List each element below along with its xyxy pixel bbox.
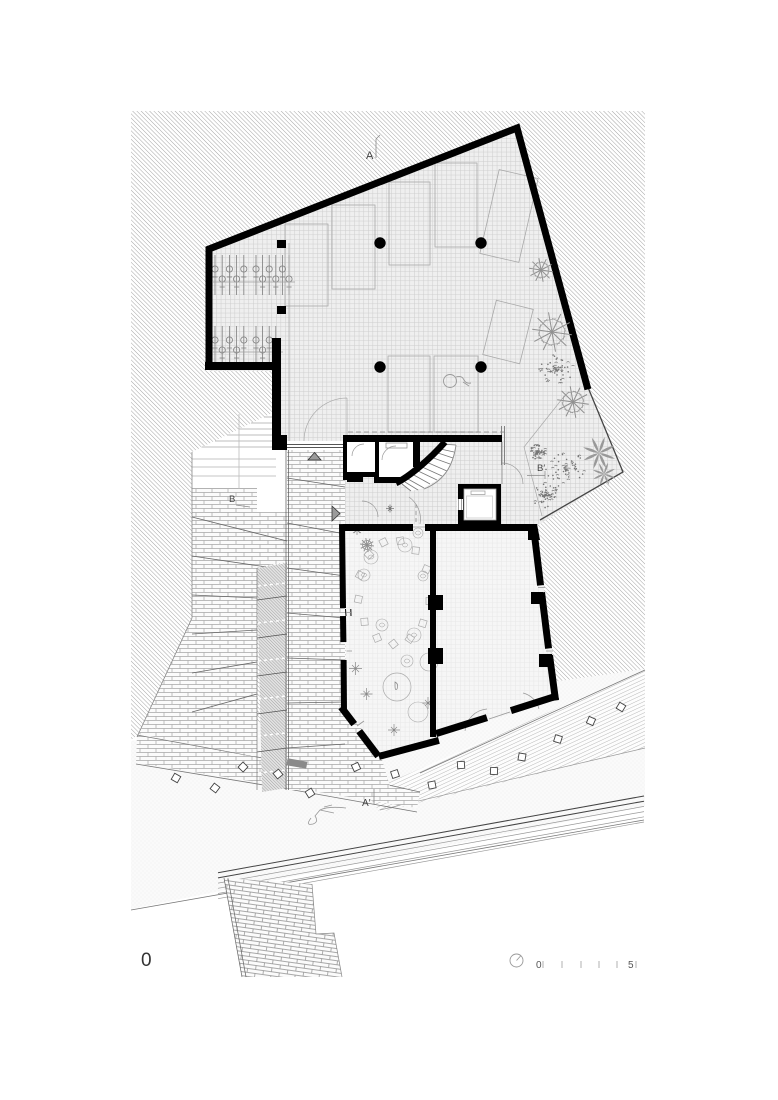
svg-text:B′: B′ — [537, 463, 545, 474]
svg-text:0: 0 — [141, 950, 152, 971]
svg-text:5: 5 — [628, 960, 634, 971]
svg-text:A′: A′ — [362, 798, 371, 809]
svg-text:B: B — [229, 494, 235, 505]
svg-text:0: 0 — [536, 960, 542, 971]
svg-text:A: A — [366, 150, 374, 162]
